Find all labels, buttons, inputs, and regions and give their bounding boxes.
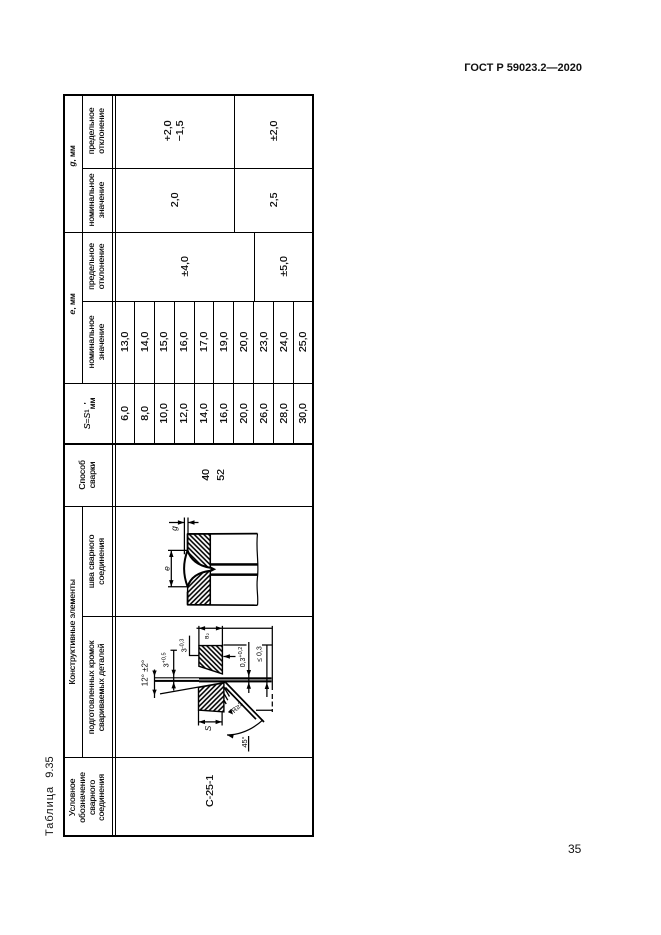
svg-text:45°: 45° <box>240 736 249 747</box>
svg-text:12° ±2°: 12° ±2° <box>141 660 150 686</box>
svg-text:3-0,3: 3-0,3 <box>179 639 188 653</box>
svg-text:≤ 0,3: ≤ 0,3 <box>256 646 263 662</box>
svg-text:в₂: в₂ <box>204 633 211 639</box>
svg-text:е: е <box>161 566 171 571</box>
svg-text:3+0,5: 3+0,5 <box>161 652 170 667</box>
svg-text:S: S <box>204 725 213 731</box>
svg-text:0,3+0,2: 0,3+0,2 <box>238 647 246 668</box>
svg-text:R≥3: R≥3 <box>231 701 245 715</box>
svg-text:g: g <box>169 526 179 531</box>
